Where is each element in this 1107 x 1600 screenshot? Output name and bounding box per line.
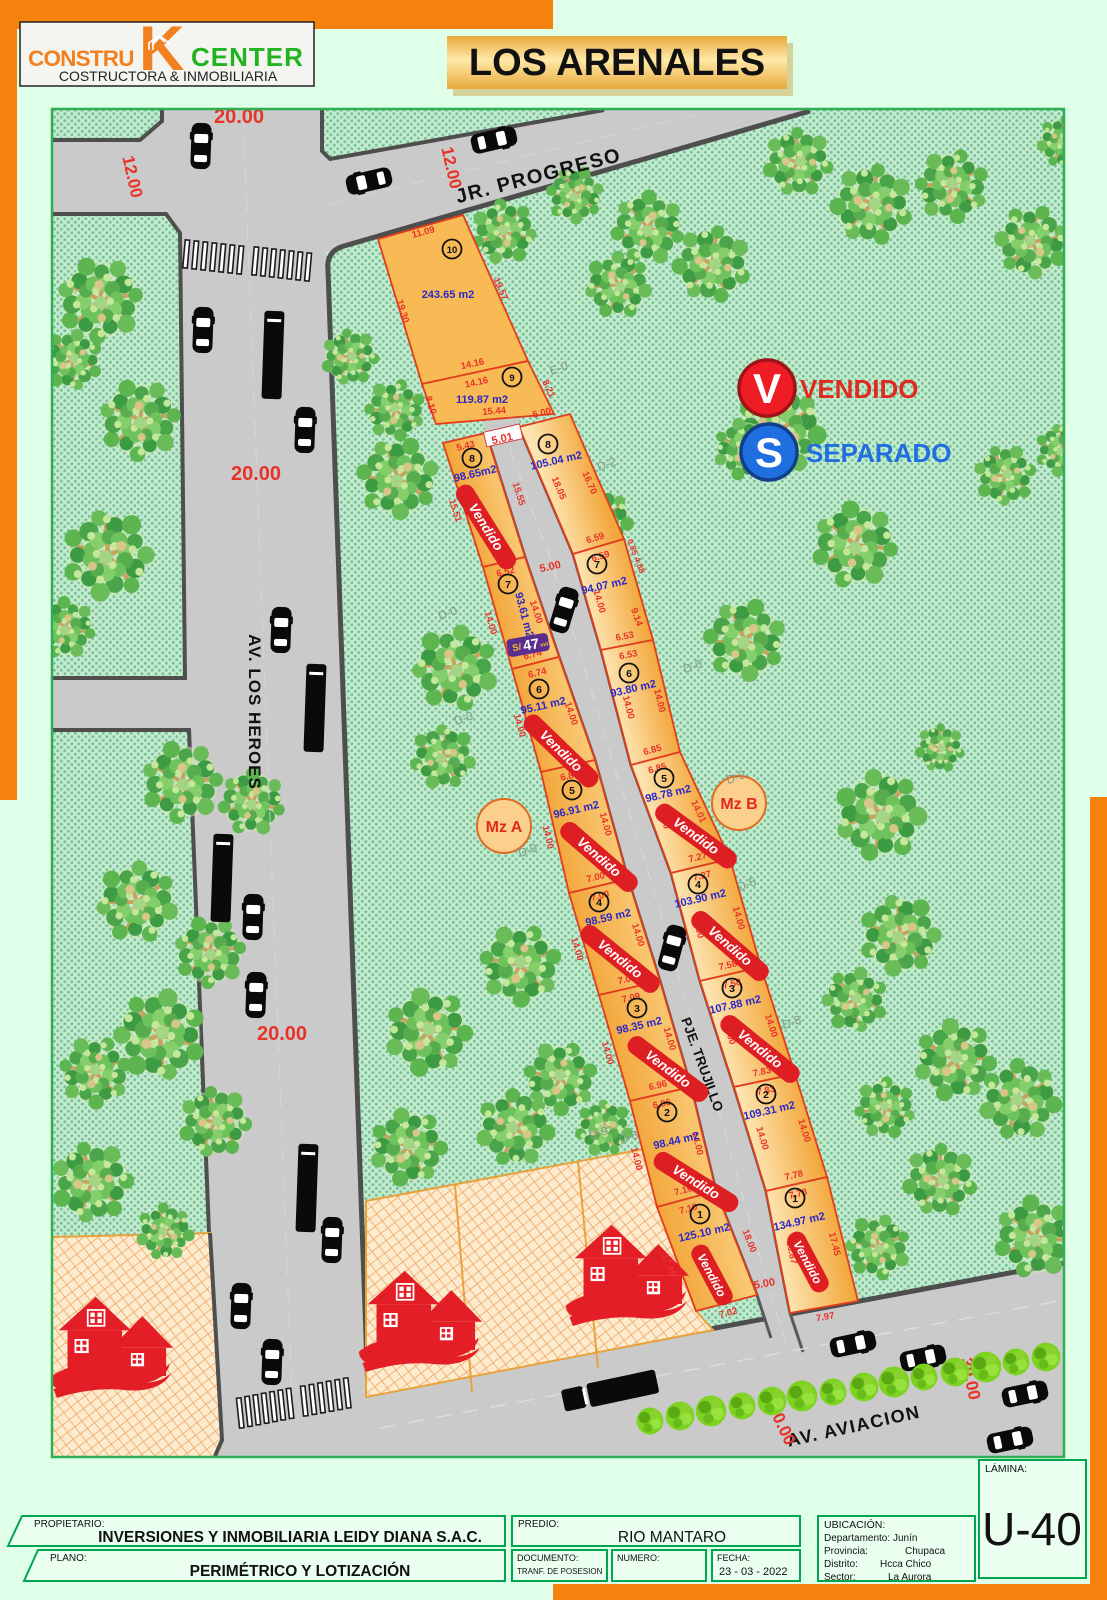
svg-text:Distrito:: Distrito: (824, 1559, 858, 1570)
svg-text:7: 7 (594, 559, 600, 571)
svg-text:La Aurora: La Aurora (888, 1572, 932, 1583)
svg-text:LOS ARENALES: LOS ARENALES (469, 42, 765, 84)
svg-text:20.00: 20.00 (231, 463, 281, 485)
svg-text:119.87 m2: 119.87 m2 (456, 394, 508, 406)
svg-text:9: 9 (509, 373, 514, 384)
svg-text:PROPIETARIO:: PROPIETARIO: (34, 1519, 104, 1530)
svg-text:INVERSIONES Y INMOBILIARIA LEI: INVERSIONES Y INMOBILIARIA LEIDY DIANA S… (98, 1529, 482, 1546)
svg-text:LÁMINA:: LÁMINA: (985, 1462, 1027, 1475)
svg-text:3: 3 (634, 1003, 640, 1015)
svg-text:243.65 m2: 243.65 m2 (422, 289, 475, 301)
svg-text:AV. LOS HEROES: AV. LOS HEROES (245, 634, 264, 790)
svg-text:Mz B: Mz B (720, 796, 757, 813)
svg-text:Junín: Junín (893, 1533, 917, 1544)
svg-text:DOCUMENTO:: DOCUMENTO: (517, 1553, 578, 1563)
svg-text:VENDIDO: VENDIDO (800, 374, 918, 404)
svg-text:V: V (753, 365, 781, 412)
svg-text:1: 1 (792, 1193, 798, 1205)
svg-text:3: 3 (729, 983, 735, 995)
svg-text:6: 6 (536, 684, 542, 696)
svg-text:U-40: U-40 (982, 1503, 1082, 1555)
svg-text:Mz A: Mz A (486, 819, 523, 836)
svg-text:4: 4 (596, 897, 602, 909)
svg-text:1: 1 (697, 1209, 703, 1221)
svg-text:20.00: 20.00 (257, 1023, 307, 1045)
svg-text:23 - 03 - 2022: 23 - 03 - 2022 (719, 1566, 788, 1578)
svg-text:47: 47 (522, 636, 541, 655)
svg-text:PLANO:: PLANO: (50, 1553, 87, 1564)
svg-text:FECHA:: FECHA: (717, 1553, 750, 1563)
svg-text:COSTRUCTORA & INMOBILIARIA: COSTRUCTORA & INMOBILIARIA (59, 68, 278, 84)
svg-text:SEPARADO: SEPARADO (806, 438, 951, 468)
svg-text:6: 6 (626, 668, 632, 680)
svg-text:8: 8 (545, 439, 551, 451)
svg-text:10: 10 (447, 245, 458, 256)
svg-text:TRANF. DE POSESION: TRANF. DE POSESION (517, 1567, 603, 1576)
svg-text:Provincia:: Provincia: (824, 1546, 868, 1557)
svg-text:Chupaca: Chupaca (905, 1546, 945, 1557)
svg-text:RIO MANTARO: RIO MANTARO (618, 1529, 726, 1546)
svg-text:4: 4 (695, 879, 701, 891)
svg-text:S: S (755, 429, 783, 476)
svg-text:Departamento:: Departamento: (824, 1533, 890, 1544)
svg-text:PREDIO:: PREDIO: (518, 1519, 559, 1530)
svg-text:Sector:: Sector: (824, 1572, 856, 1583)
svg-text:Hcca Chico: Hcca Chico (880, 1559, 932, 1570)
svg-text:7: 7 (505, 579, 511, 591)
svg-text:15.44: 15.44 (482, 405, 507, 418)
svg-text:8: 8 (469, 453, 475, 465)
svg-text:5: 5 (661, 773, 667, 785)
svg-text:NUMERO:: NUMERO: (617, 1553, 660, 1563)
svg-text:PERIMÉTRICO Y LOTIZACIÓN: PERIMÉTRICO Y LOTIZACIÓN (190, 1562, 411, 1580)
svg-text:2: 2 (763, 1089, 769, 1101)
svg-text:5: 5 (569, 785, 575, 797)
svg-text:2: 2 (664, 1107, 670, 1119)
svg-text:UBICACIÓN:: UBICACIÓN: (824, 1518, 885, 1531)
